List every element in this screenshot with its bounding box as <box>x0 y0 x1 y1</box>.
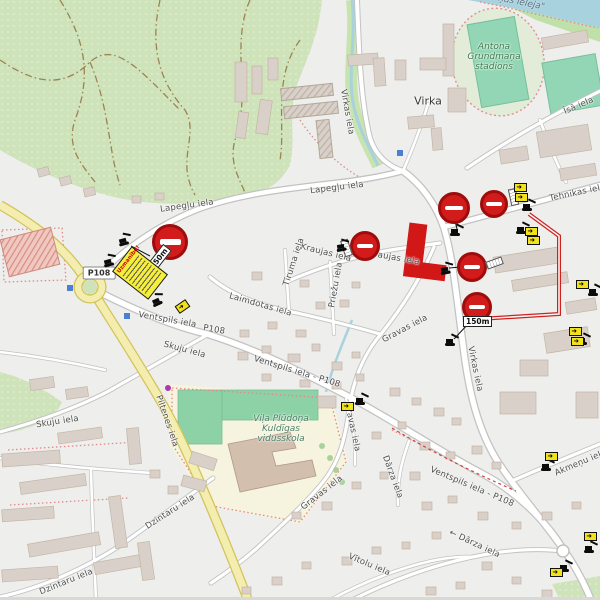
no-entry-sign <box>457 252 487 282</box>
school-field <box>178 390 222 444</box>
mini-roundabout <box>557 545 569 557</box>
no-entry-sign <box>480 190 508 218</box>
detour-sign-icon <box>571 337 584 346</box>
detour-sign-icon <box>569 327 582 336</box>
detour-sign-icon <box>550 568 563 577</box>
shop-icon <box>165 385 171 391</box>
detour-sign-icon <box>576 280 589 289</box>
map-base <box>0 0 600 600</box>
school-label: Viļa Plūdoņa Kuldīgas vidusskola <box>253 414 309 444</box>
no-entry-sign <box>350 231 380 261</box>
map-canvas[interactable]: Lapegļu iela Lapegļu iela Virkas iela Vi… <box>0 0 600 600</box>
detour-sign-icon <box>515 193 528 202</box>
detour-sign-icon <box>514 183 527 192</box>
excavator-icon <box>445 335 459 346</box>
detour-sign-icon <box>341 402 354 411</box>
place-label-virka: Virka <box>414 95 442 108</box>
bus-stop-icon <box>124 313 130 319</box>
bus-stop-icon <box>67 285 73 291</box>
excavator-icon <box>541 460 555 471</box>
no-entry-sign <box>438 192 470 224</box>
excavator-icon <box>450 225 464 236</box>
detour-sign-icon <box>545 452 558 461</box>
excavator-icon <box>588 285 600 296</box>
playground-icon <box>397 150 403 156</box>
excavator-icon <box>355 394 369 405</box>
detour-sign-icon <box>527 236 540 245</box>
stadium-label: Antona Grundmaņa stadions <box>467 42 520 72</box>
distance-badge: 150m <box>463 316 492 327</box>
building-construction <box>0 227 60 276</box>
detour-sign-icon <box>584 532 597 541</box>
excavator-icon <box>584 542 598 553</box>
route-ref-badge: P108 <box>83 267 116 280</box>
